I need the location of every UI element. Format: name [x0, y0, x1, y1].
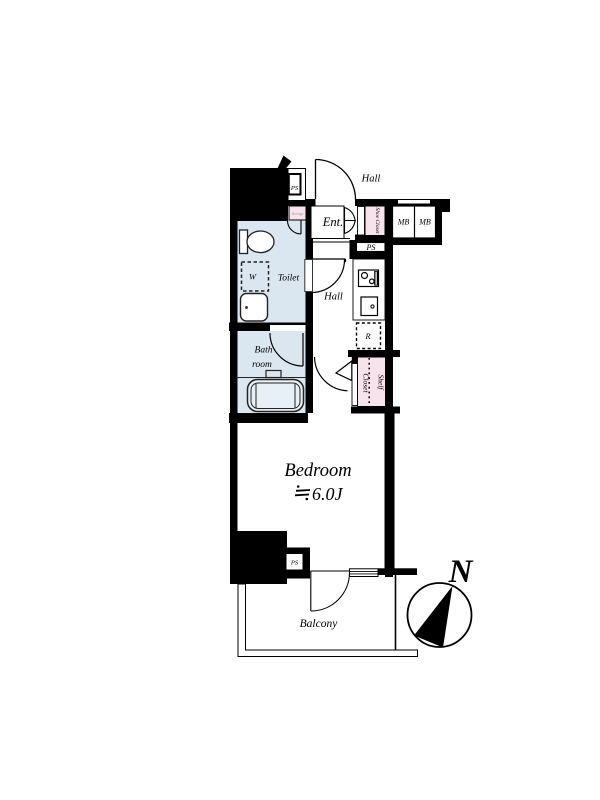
svg-text:Bath: Bath: [255, 346, 273, 356]
svg-text:6.0J: 6.0J: [312, 484, 344, 504]
svg-text:Bedroom: Bedroom: [284, 461, 351, 481]
svg-text:Balcony: Balcony: [300, 618, 339, 630]
svg-text:PS: PS: [366, 243, 376, 252]
svg-text:room: room: [252, 360, 272, 370]
svg-text:MB: MB: [418, 218, 431, 227]
svg-text:N: N: [448, 554, 474, 590]
svg-text:Closet: Closet: [362, 373, 371, 393]
svg-text:MB: MB: [397, 218, 410, 227]
svg-text:Hall: Hall: [361, 174, 381, 185]
svg-text:Toilet: Toilet: [278, 274, 300, 284]
svg-text:Storage: Storage: [292, 212, 304, 216]
svg-text:Hall: Hall: [323, 292, 343, 303]
svg-text:Shelf: Shelf: [377, 375, 386, 391]
svg-text:R: R: [364, 331, 371, 341]
svg-text:PS: PS: [290, 185, 299, 192]
svg-text:W: W: [249, 272, 257, 282]
svg-text:Ent.: Ent.: [322, 215, 343, 229]
svg-text:PS: PS: [290, 560, 299, 567]
svg-text:Shoe Closet: Shoe Closet: [374, 207, 380, 234]
